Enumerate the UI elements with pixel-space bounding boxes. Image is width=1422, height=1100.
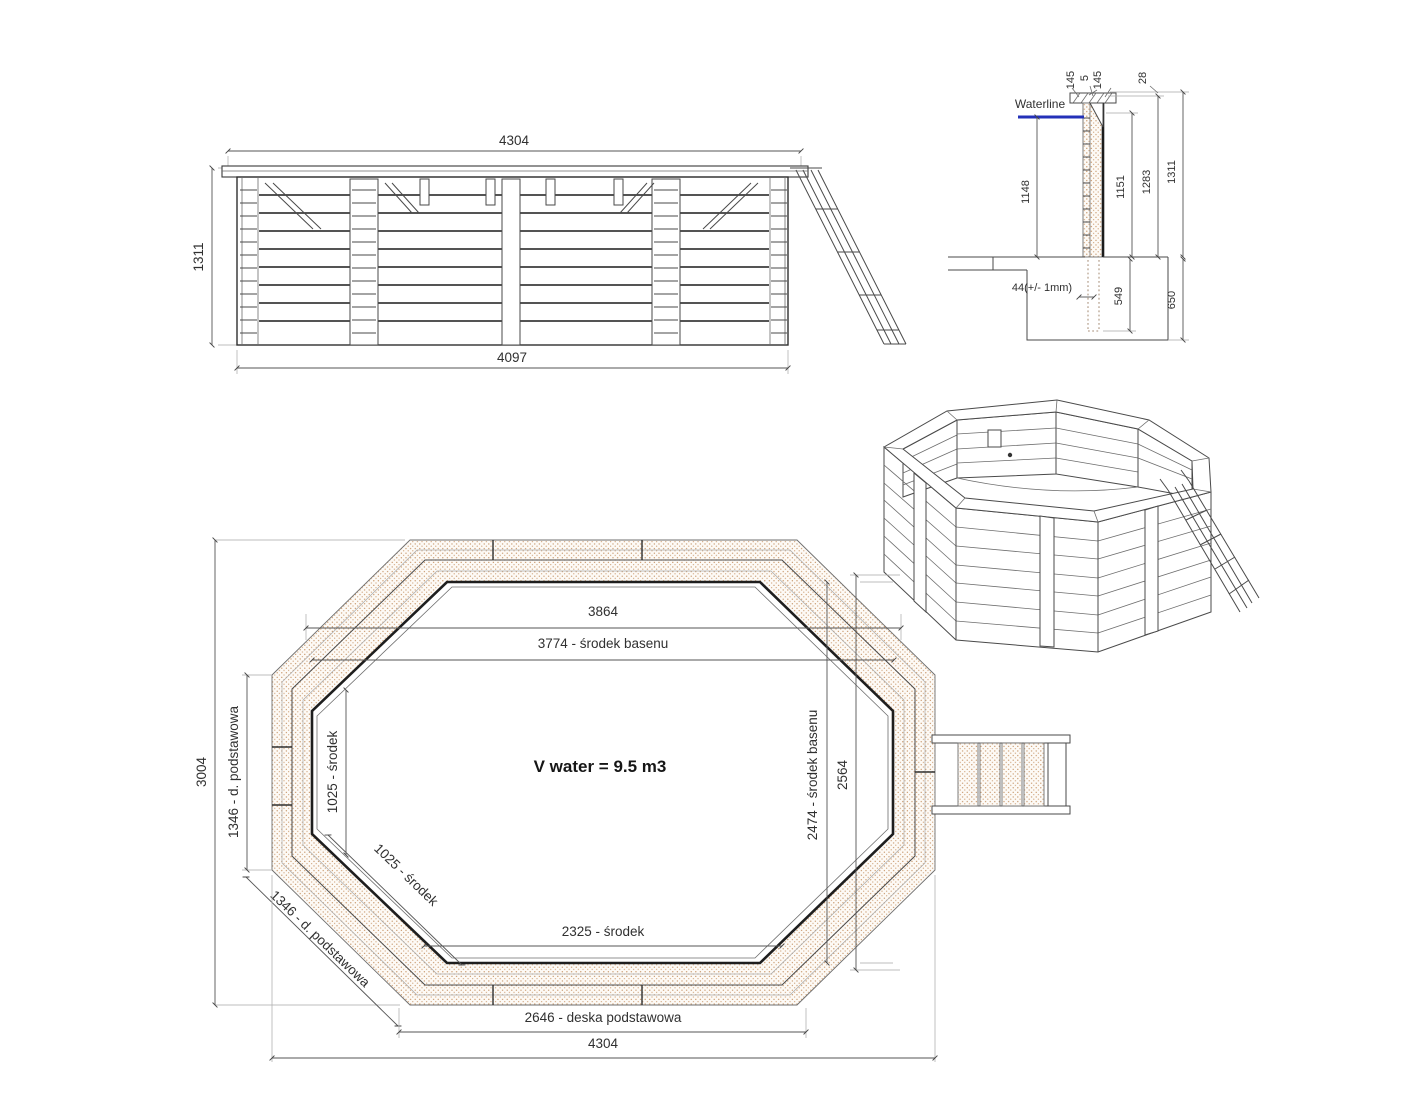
elevation-posts [350,179,680,345]
dim-plan-bottom-center: 2325 - środek [562,924,645,939]
elevation-wall [237,177,788,345]
elevation-tabs [420,179,623,205]
dim-elevation-top-width: 4304 [499,133,530,148]
label-volume: V water = 9.5 m3 [534,757,667,776]
dim-plan-top-inner: 3864 [588,604,619,619]
dim-foundation: 650 [1166,291,1178,309]
plan-ladder [932,735,1070,814]
dim-plan-right-center: 2474 - środek basenu [805,710,820,841]
dim-total-height: 1311 [1166,160,1178,184]
elevation-rim [222,166,808,177]
dim-rim-offset: 28 [1137,72,1149,84]
dim-plan-bottom-base: 2646 - deska podstawowa [525,1010,682,1025]
dim-outer-height: 1283 [1141,170,1153,194]
dim-water-depth: 1148 [1020,180,1032,204]
section-ground [948,257,1168,340]
section-view: Waterline 145 5 145 1148 1151 1283 1311 … [948,71,1189,340]
dim-plan-left-center: 1025 - środek [325,730,340,813]
pool-technical-drawing: 4304 1311 4097 [0,0,1422,1100]
dim-plan-left-base: 1346 - d. podstawowa [226,705,241,838]
dim-inner-height: 1151 [1115,175,1127,199]
section-wall [1083,103,1103,257]
dim-plan-right-h: 2564 [835,759,850,790]
dim-cap-5: 5 [1079,75,1091,81]
dim-plan-overall-width: 4304 [588,1036,619,1051]
label-waterline: Waterline [1015,97,1066,111]
elevation-ladder [790,168,906,344]
elevation-view: 4304 1311 4097 [191,133,906,374]
dim-cap-145-right: 145 [1092,71,1104,89]
dim-plan-overall-height: 3004 [194,756,209,787]
dim-post-embed: 549 [1113,287,1125,305]
dim-cap-145-left: 145 [1065,71,1077,89]
dim-elevation-bottom-width: 4097 [497,350,527,365]
dim-elevation-height: 1311 [191,242,206,271]
dim-plan-top-center: 3774 - środek basenu [538,636,669,651]
iso-view [884,400,1259,652]
dim-anchor-offset: 44(+/- 1mm) [1012,282,1072,294]
